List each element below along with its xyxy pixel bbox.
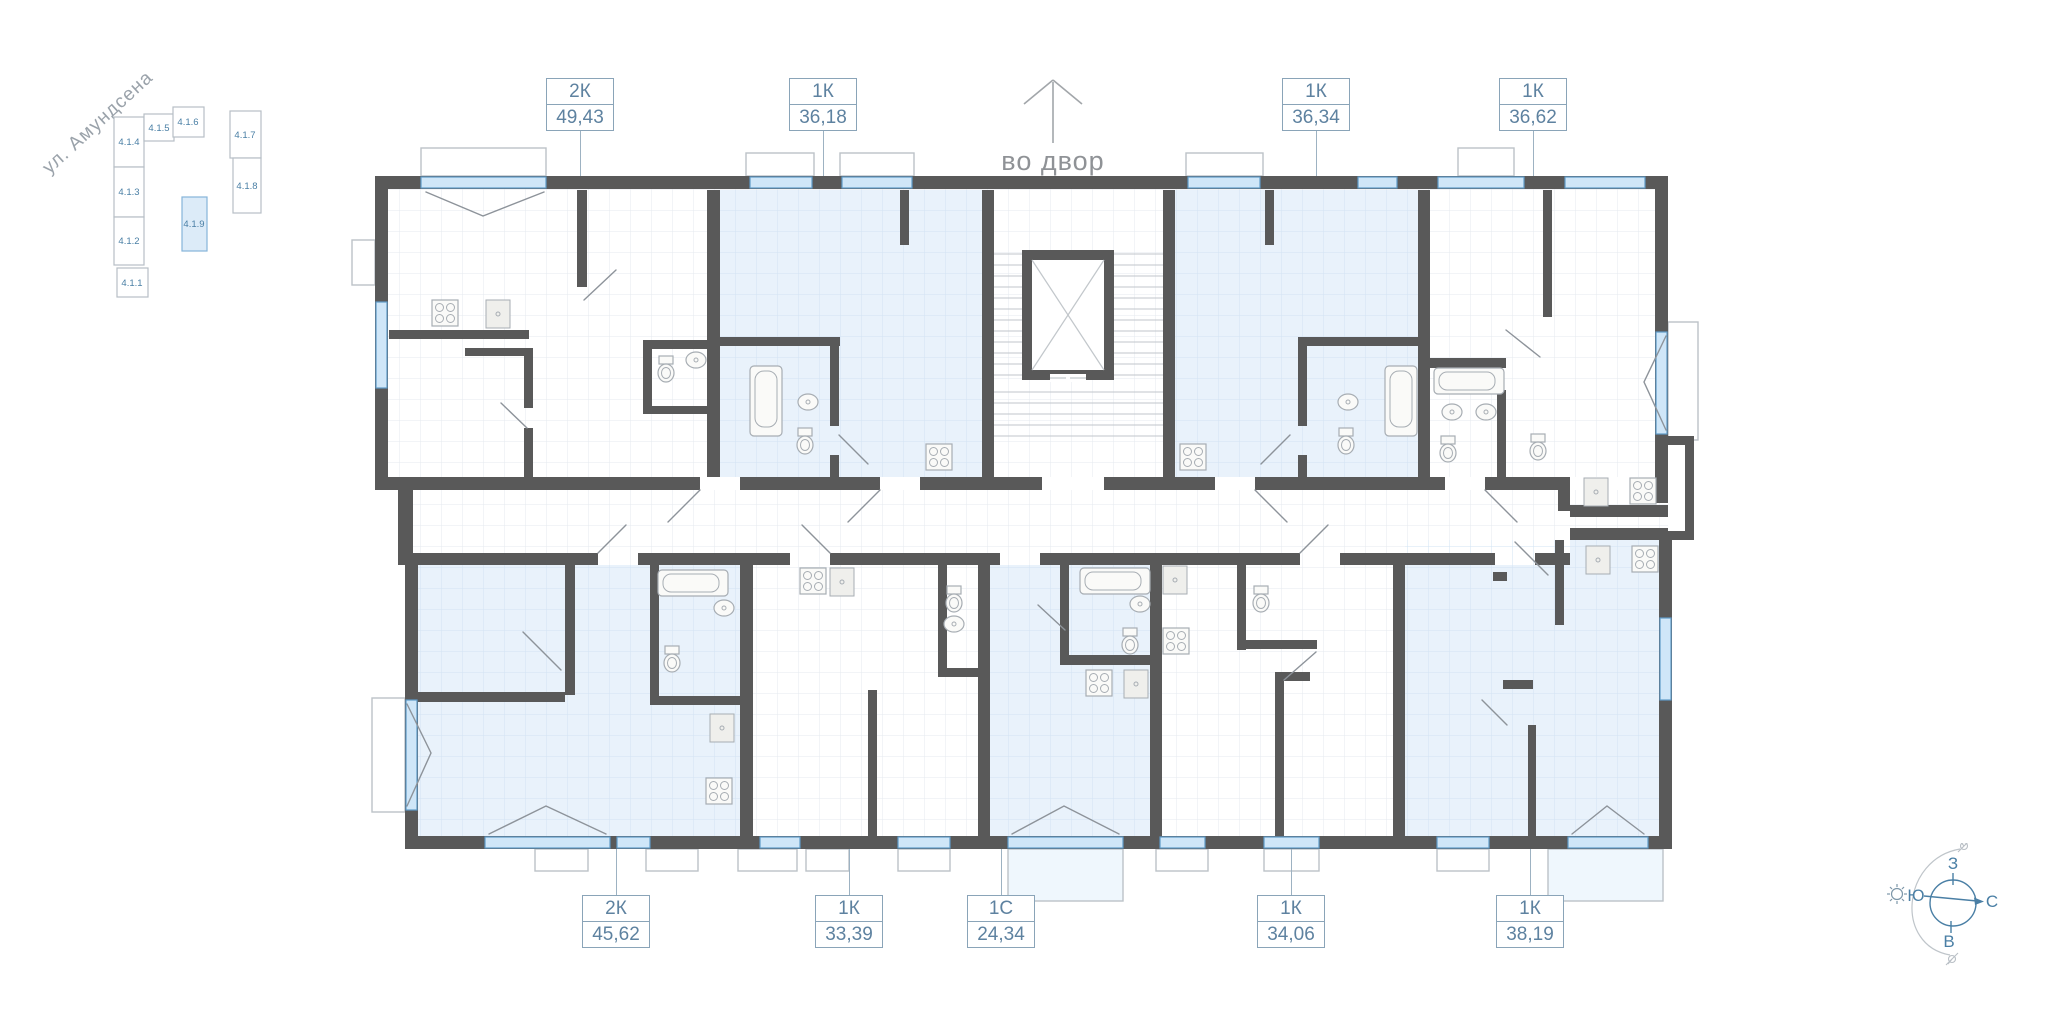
compass: З Ю С В [1880,843,2048,1013]
leader-line [1530,849,1531,895]
apartment-area-value: 49,43 [547,105,613,130]
apartment-label-bottom-4[interactable]: 1К 34,06 [1257,895,1325,948]
apartment-label-bottom-5[interactable]: 1К 38,19 [1496,895,1564,948]
apartment-type: 1К [1497,896,1563,922]
apartment-type: 2К [547,79,613,105]
minimap-building-label: 4.1.7 [234,130,255,141]
apartment-area-value: 34,06 [1258,922,1324,947]
minimap-building-label: 4.1.2 [118,236,139,247]
compass-west-label: З [1948,854,1958,873]
minimap-building-label: 4.1.1 [121,278,142,289]
compass-east-label: В [1943,932,1954,951]
apartment-type: 1С [968,896,1034,922]
apartment-label-bottom-1[interactable]: 2К 45,62 [582,895,650,948]
leader-line [1316,130,1317,176]
minimap-building-label: 4.1.9 [183,219,204,230]
leader-line [1001,849,1002,895]
floorplan-page: { "street": { "label": "ул. Амундсена" }… [0,0,2048,1024]
apartment-label-top-2[interactable]: 1К 36,18 [789,78,857,131]
compass-north-label: С [1986,892,1998,911]
leader-line [1291,849,1292,895]
apartment-label-bottom-3[interactable]: 1С 24,34 [967,895,1035,948]
apartment-area-value: 36,18 [790,105,856,130]
leader-line [849,849,850,895]
apartment-type: 2К [583,896,649,922]
location-minimap: 4.1.4 4.1.3 4.1.2 4.1.1 4.1.5 4.1.6 4.1.… [100,95,280,310]
apartment-area-value: 36,62 [1500,105,1566,130]
apartment-type: 1К [790,79,856,105]
minimap-building-label: 4.1.3 [118,187,139,198]
apartment-type: 1К [1258,896,1324,922]
apartment-area-value: 38,19 [1497,922,1563,947]
minimap-building-label: 4.1.6 [177,117,198,128]
apartment-area-value: 36,34 [1283,105,1349,130]
minimap-building-label: 4.1.4 [118,137,139,148]
leader-line [1533,130,1534,176]
apartment-type: 1К [1500,79,1566,105]
courtyard-label: во двор [1001,146,1104,177]
apartment-label-bottom-2[interactable]: 1К 33,39 [815,895,883,948]
apartment-type: 1К [1283,79,1349,105]
leader-line [616,849,617,895]
apartment-label-top-1[interactable]: 2К 49,43 [546,78,614,131]
minimap-building-label: 4.1.8 [236,181,257,192]
apartment-area-value: 33,39 [816,922,882,947]
apartment-area-value: 24,34 [968,922,1034,947]
apartment-area-value: 45,62 [583,922,649,947]
apartment-type: 1К [816,896,882,922]
sunrise-icon [1958,843,1970,852]
leader-line [580,130,581,176]
compass-circle [1930,880,1976,926]
apartment-label-top-3[interactable]: 1К 36,34 [1282,78,1350,131]
compass-south-label: Ю [1907,886,1924,905]
courtyard-arrow-icon [1024,80,1082,143]
minimap-building-label: 4.1.5 [148,123,169,134]
apartment-label-top-4[interactable]: 1К 36,62 [1499,78,1567,131]
sun-icon [1887,884,1907,904]
leader-line [823,130,824,176]
